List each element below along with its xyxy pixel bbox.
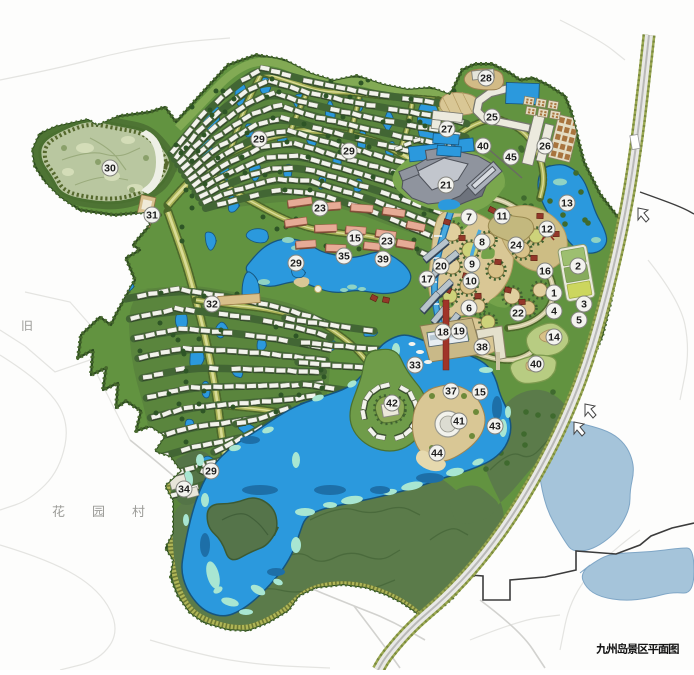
svg-text:23: 23 [381,236,393,248]
svg-text:27: 27 [441,124,453,136]
svg-text:22: 22 [512,308,524,320]
svg-text:24: 24 [510,240,522,252]
svg-text:33: 33 [409,360,421,372]
svg-text:13: 13 [561,198,573,210]
svg-text:40: 40 [477,141,489,153]
svg-text:20: 20 [435,261,447,273]
svg-text:34: 34 [178,484,190,496]
svg-text:15: 15 [349,233,361,245]
svg-text:15: 15 [474,387,486,399]
svg-text:44: 44 [431,448,443,460]
svg-text:9: 9 [469,259,475,271]
svg-text:29: 29 [253,134,265,146]
svg-text:30: 30 [104,163,116,175]
svg-text:12: 12 [541,224,553,236]
svg-text:3: 3 [581,299,587,311]
svg-text:21: 21 [440,180,452,192]
svg-text:25: 25 [486,112,498,124]
svg-text:10: 10 [465,276,477,288]
svg-text:5: 5 [576,315,582,327]
svg-text:1: 1 [551,288,557,300]
svg-text:42: 42 [386,398,398,410]
svg-text:16: 16 [539,266,551,278]
svg-text:38: 38 [476,342,488,354]
svg-text:23: 23 [314,203,326,215]
svg-text:43: 43 [489,421,501,433]
svg-text:18: 18 [437,327,449,339]
svg-text:40: 40 [530,359,542,371]
svg-text:28: 28 [480,73,492,85]
svg-text:39: 39 [377,254,389,266]
svg-text:17: 17 [421,274,433,286]
svg-text:7: 7 [466,212,472,224]
svg-text:45: 45 [505,152,517,164]
svg-text:35: 35 [338,251,350,263]
svg-text:14: 14 [548,332,560,344]
svg-text:32: 32 [206,299,218,311]
svg-text:11: 11 [496,211,507,223]
svg-text:31: 31 [146,210,158,222]
svg-text:2: 2 [575,261,581,273]
svg-text:26: 26 [539,141,551,153]
svg-text:41: 41 [453,416,465,428]
svg-text:29: 29 [205,466,217,478]
svg-text:37: 37 [445,386,457,398]
svg-text:6: 6 [466,303,472,315]
svg-text:8: 8 [479,237,485,249]
svg-text:4: 4 [551,306,557,318]
svg-text:29: 29 [343,146,355,158]
svg-text:19: 19 [453,326,465,338]
svg-text:29: 29 [290,258,302,270]
